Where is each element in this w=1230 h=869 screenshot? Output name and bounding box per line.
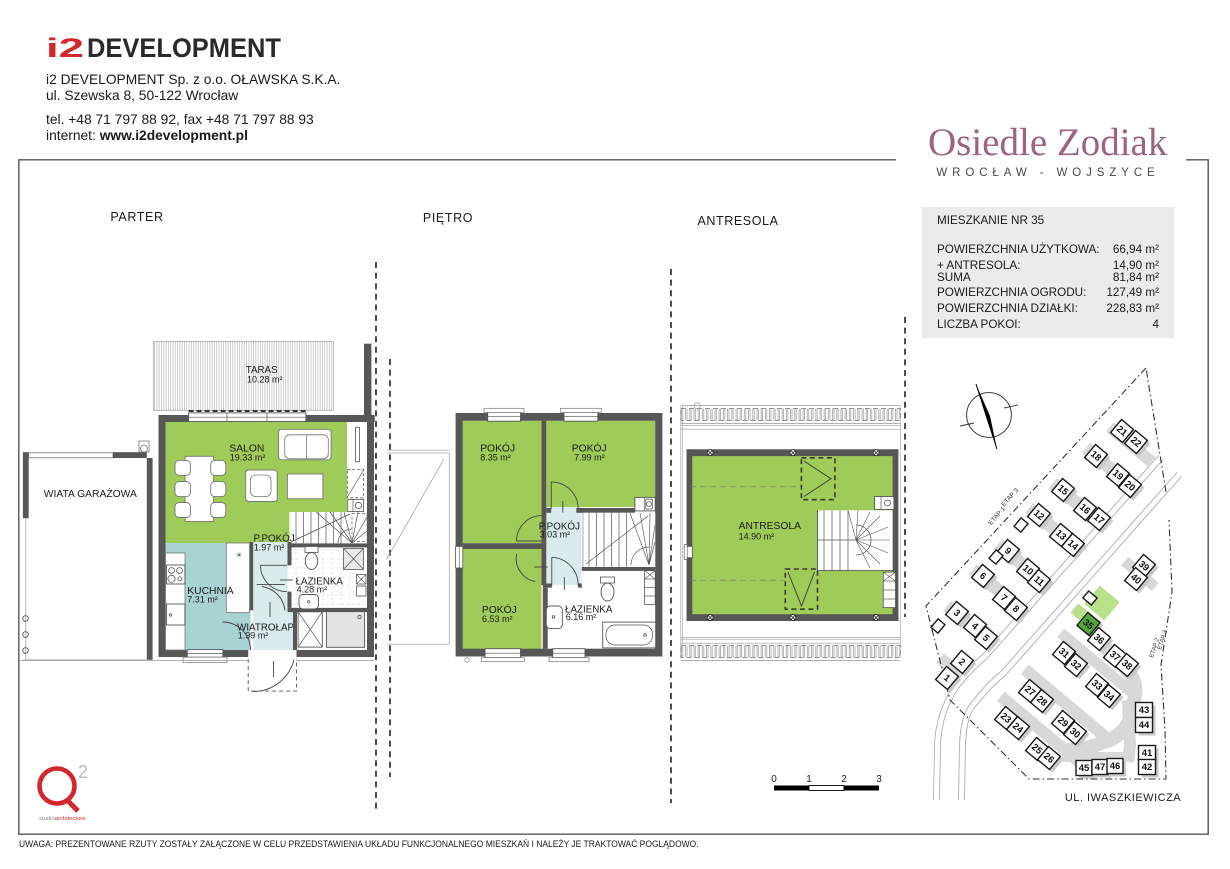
svg-text:45: 45 (1079, 763, 1090, 774)
svg-text:PARTER: PARTER (110, 210, 163, 224)
svg-text:WIATA GARAŻOWA: WIATA GARAŻOWA (44, 487, 137, 500)
svg-text:43: 43 (1139, 705, 1150, 716)
svg-text:2: 2 (841, 774, 847, 785)
svg-text:3: 3 (876, 774, 882, 785)
svg-text:UL. IWASZKIEWICZA: UL. IWASZKIEWICZA (1065, 792, 1181, 804)
svg-text:19.33 m²: 19.33 m² (230, 452, 266, 462)
svg-text:ANTRESOLA: ANTRESOLA (697, 214, 778, 228)
svg-text:6.16 m²: 6.16 m² (566, 612, 597, 622)
svg-text:42: 42 (1142, 762, 1153, 773)
svg-text:47: 47 (1095, 762, 1106, 773)
svg-text:2: 2 (78, 762, 88, 782)
svg-text:0: 0 (771, 774, 777, 785)
svg-text:ETAP 3: ETAP 3 (1000, 487, 1020, 508)
svg-text:3.03 m²: 3.03 m² (540, 530, 571, 540)
svg-text:1.97 m²: 1.97 m² (254, 543, 285, 553)
svg-text:8.35 m²: 8.35 m² (480, 453, 511, 463)
svg-text:ETAP 1: ETAP 1 (987, 505, 1007, 526)
svg-text:1: 1 (806, 774, 812, 785)
svg-text:✳: ✳ (236, 552, 242, 560)
svg-text:PIĘTRO: PIĘTRO (423, 211, 473, 225)
svg-text:1.99 m²: 1.99 m² (238, 631, 269, 641)
svg-text:14.90 m²: 14.90 m² (739, 531, 775, 541)
svg-text:46: 46 (1110, 761, 1121, 772)
svg-text:studioarchitecture: studioarchitecture (39, 816, 86, 822)
svg-text:10.28 m²: 10.28 m² (247, 374, 283, 384)
svg-text:7.99 m²: 7.99 m² (574, 453, 605, 463)
svg-text:7.31 m²: 7.31 m² (187, 595, 218, 605)
svg-text:41: 41 (1142, 748, 1153, 759)
svg-text:44: 44 (1139, 720, 1150, 731)
svg-text:6.53 m²: 6.53 m² (482, 614, 513, 624)
